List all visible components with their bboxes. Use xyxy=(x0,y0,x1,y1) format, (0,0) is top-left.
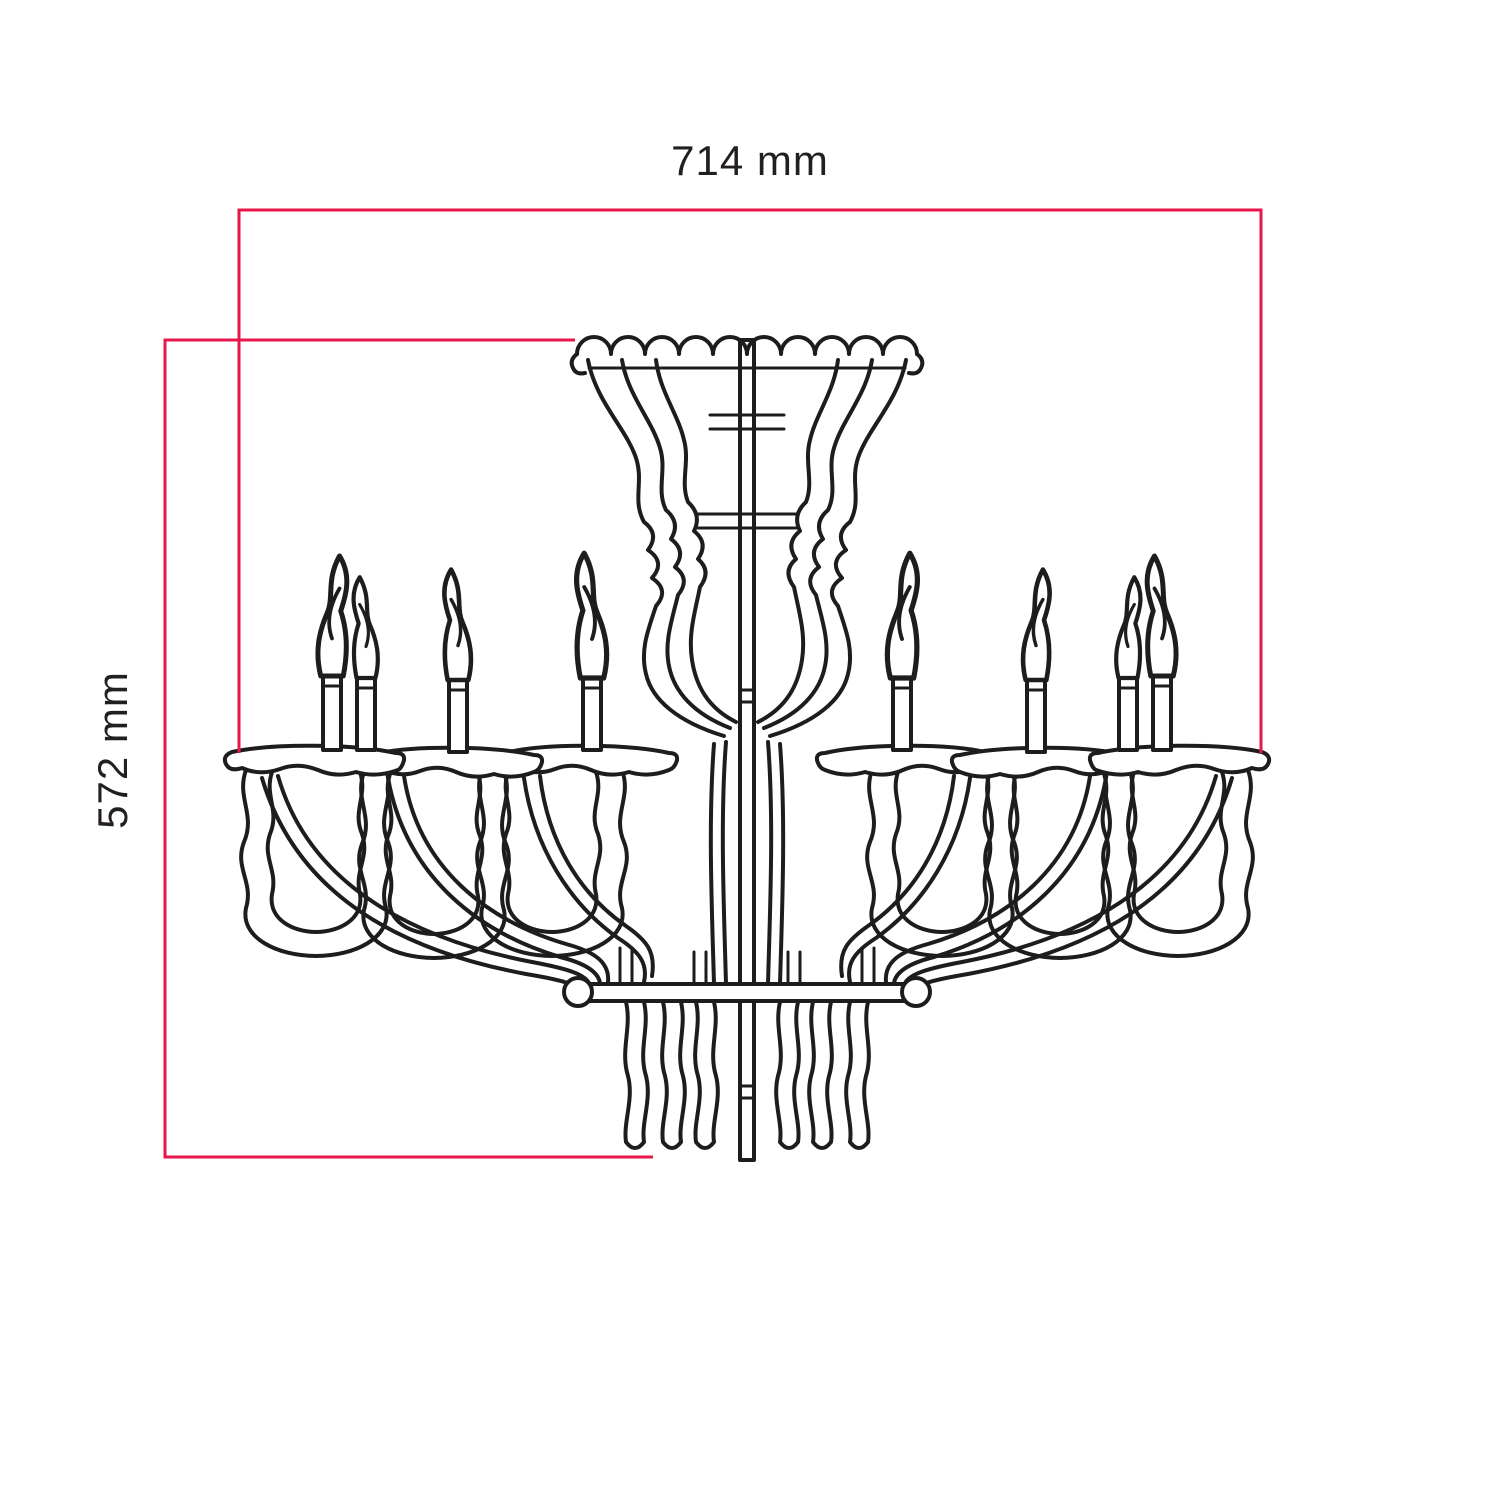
height-dimension-label: 572 mm xyxy=(90,600,136,900)
chandelier-right-half xyxy=(758,360,1269,1148)
chandelier-left-half xyxy=(225,360,736,1148)
technical-drawing-canvas: 714 mm 572 mm xyxy=(0,0,1500,1500)
width-dimension-label: 714 mm xyxy=(600,138,900,184)
chandelier-line-drawing xyxy=(225,337,1269,1160)
width-dimension-line xyxy=(239,210,1261,753)
chandelier-dimension-drawing xyxy=(0,0,1500,1500)
chandelier-crown-rim xyxy=(572,337,923,373)
chandelier-bottom-bar xyxy=(564,978,930,1006)
